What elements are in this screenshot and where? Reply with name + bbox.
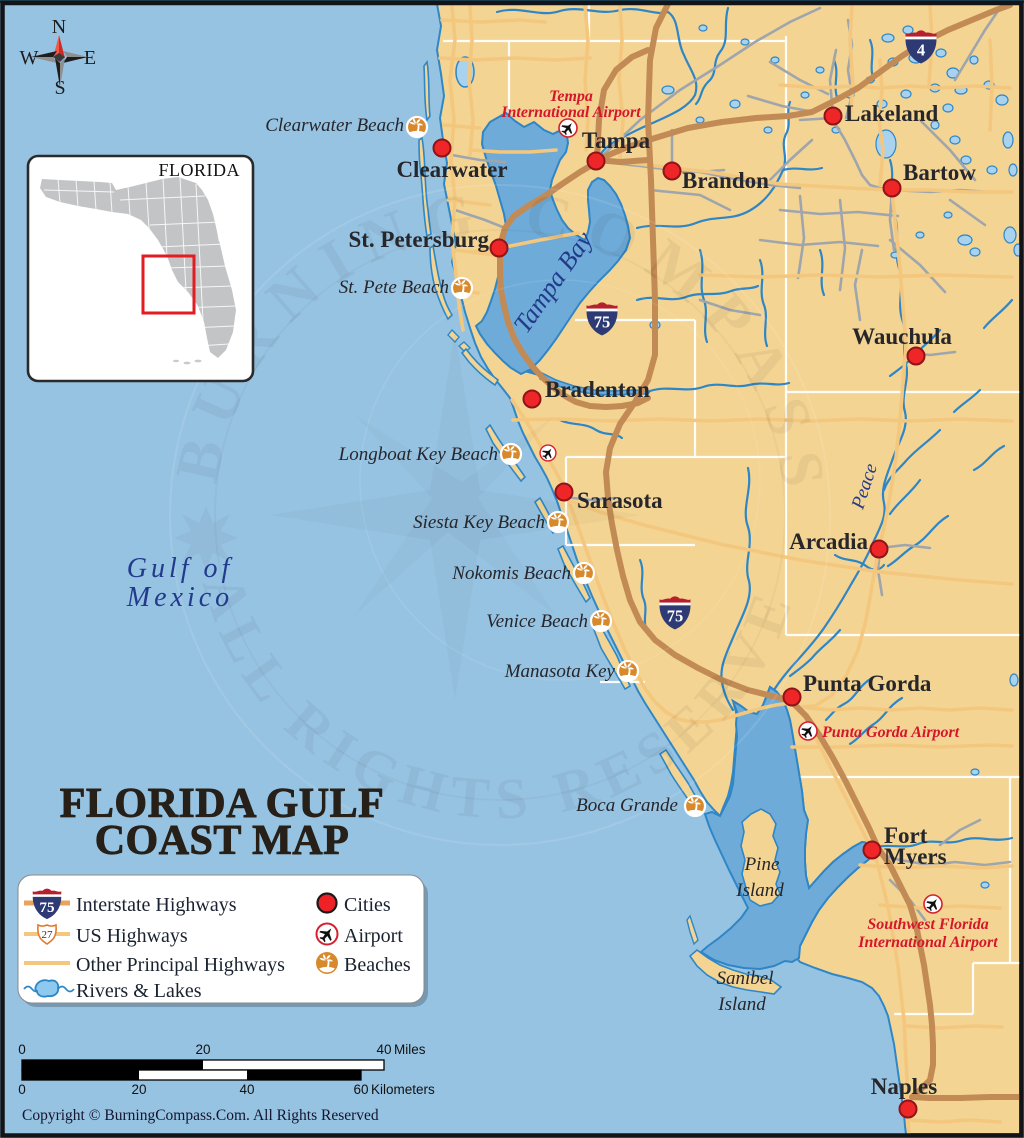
svg-text:27: 27: [42, 929, 54, 941]
svg-text:Kilometers: Kilometers: [371, 1082, 435, 1097]
svg-text:Longboat Key Beach: Longboat Key Beach: [338, 444, 498, 465]
svg-text:Myers: Myers: [884, 844, 947, 869]
svg-text:40: 40: [239, 1082, 254, 1097]
svg-text:Airport: Airport: [344, 925, 403, 947]
svg-text:Rivers & Lakes: Rivers & Lakes: [76, 980, 202, 1002]
svg-text:COAST MAP: COAST MAP: [95, 818, 350, 864]
svg-text:Boca Grande: Boca Grande: [576, 795, 678, 816]
svg-text:Clearwater Beach: Clearwater Beach: [265, 115, 404, 136]
svg-text:Arcadia: Arcadia: [789, 529, 868, 554]
svg-text:Interstate Highways: Interstate Highways: [76, 894, 237, 916]
svg-text:Southwest Florida: Southwest Florida: [867, 916, 988, 933]
svg-text:0: 0: [18, 1042, 26, 1057]
svg-text:Wauchula: Wauchula: [852, 324, 952, 349]
svg-text:FLORIDA: FLORIDA: [158, 160, 240, 180]
svg-text:Venice Beach: Venice Beach: [486, 611, 588, 632]
svg-text:Naples: Naples: [871, 1074, 938, 1099]
svg-text:Siesta Key Beach: Siesta Key Beach: [413, 512, 545, 533]
svg-text:Nokomis Beach: Nokomis Beach: [451, 563, 571, 584]
svg-text:St. Petersburg: St. Petersburg: [348, 227, 489, 252]
svg-text:Bartow: Bartow: [903, 160, 976, 185]
svg-text:60: 60: [353, 1082, 368, 1097]
svg-text:Gulf of: Gulf of: [127, 553, 234, 584]
svg-text:Tempa: Tempa: [549, 88, 593, 105]
svg-text:40: 40: [376, 1042, 391, 1057]
svg-text:20: 20: [195, 1042, 210, 1057]
svg-text:Cities: Cities: [344, 894, 391, 916]
svg-text:Pine: Pine: [744, 854, 780, 875]
svg-text:Punta Gorda: Punta Gorda: [803, 671, 932, 696]
svg-text:75: 75: [667, 607, 684, 626]
svg-text:Punta Gorda Airport: Punta Gorda Airport: [821, 724, 960, 741]
svg-text:20: 20: [131, 1082, 146, 1097]
svg-text:75: 75: [39, 899, 55, 916]
svg-text:Tampa: Tampa: [582, 128, 651, 153]
svg-text:Lakeland: Lakeland: [845, 101, 939, 126]
svg-text:International Airport: International Airport: [500, 104, 641, 121]
svg-text:Brandon: Brandon: [682, 168, 769, 193]
svg-text:International Airport: International Airport: [857, 934, 998, 951]
svg-text:75: 75: [594, 313, 611, 332]
svg-text:Clearwater: Clearwater: [396, 157, 507, 182]
svg-text:E: E: [84, 47, 96, 69]
svg-text:Manasota Key: Manasota Key: [504, 661, 616, 682]
svg-text:N: N: [52, 16, 66, 38]
svg-text:Sarasota: Sarasota: [577, 488, 663, 513]
svg-text:0: 0: [18, 1082, 26, 1097]
svg-text:Island: Island: [717, 994, 766, 1015]
svg-text:Copyright © BurningCompass.Com: Copyright © BurningCompass.Com. All Righ…: [22, 1107, 379, 1124]
svg-text:Miles: Miles: [394, 1042, 426, 1057]
svg-text:4: 4: [917, 41, 925, 60]
svg-text:Other Principal Highways: Other Principal Highways: [76, 954, 285, 976]
svg-text:St. Pete Beach: St. Pete Beach: [339, 277, 449, 298]
svg-text:Sanibel: Sanibel: [717, 968, 774, 989]
svg-text:Island: Island: [735, 880, 784, 901]
svg-text:Mexico: Mexico: [126, 582, 233, 613]
svg-text:Beaches: Beaches: [344, 954, 411, 976]
svg-text:Bradenton: Bradenton: [545, 377, 650, 402]
svg-text:US Highways: US Highways: [76, 925, 188, 947]
